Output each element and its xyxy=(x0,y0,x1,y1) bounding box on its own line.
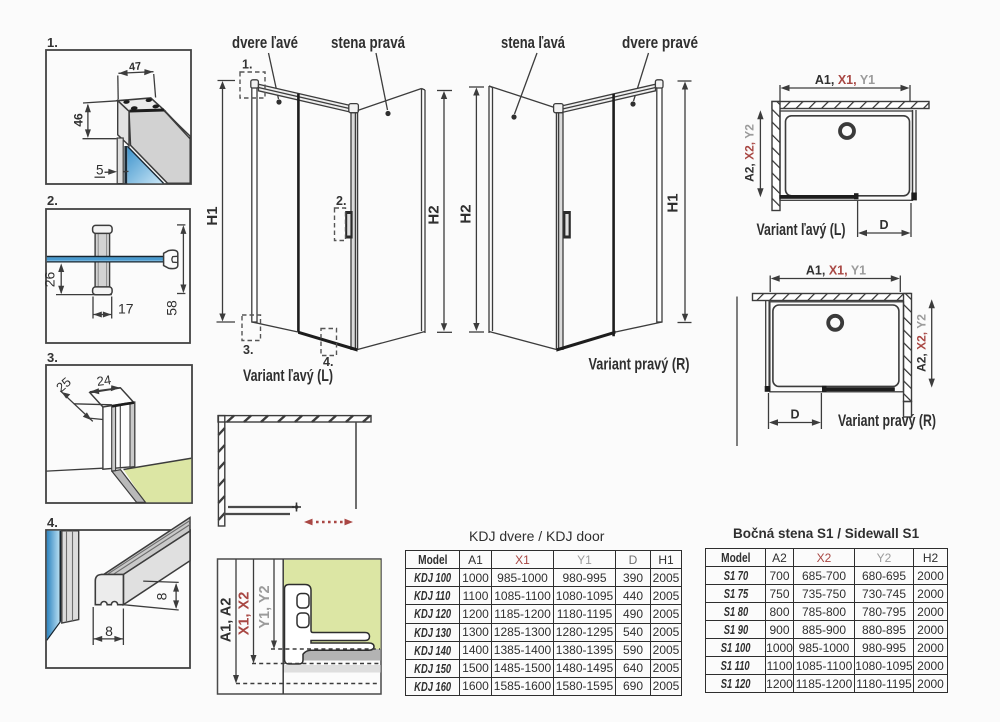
svg-text:stena pravá: stena pravá xyxy=(331,33,405,52)
svg-text:dvere pravé: dvere pravé xyxy=(622,33,698,52)
svg-text:1.: 1. xyxy=(47,35,58,50)
svg-text:D: D xyxy=(790,408,799,422)
svg-text:stena ľavá: stena ľavá xyxy=(501,33,565,52)
svg-text:1.: 1. xyxy=(242,58,252,72)
svg-text:D: D xyxy=(879,218,888,232)
svg-text:46: 46 xyxy=(72,113,86,127)
svg-text:3.: 3. xyxy=(243,343,253,357)
svg-text:3.: 3. xyxy=(47,350,58,365)
svg-text:24: 24 xyxy=(96,372,112,389)
svg-text:H2: H2 xyxy=(458,204,475,223)
svg-text:A2, X2, Y2: A2, X2, Y2 xyxy=(743,124,757,182)
svg-text:X1, X2: X1, X2 xyxy=(237,592,253,636)
svg-text:8: 8 xyxy=(105,623,113,639)
svg-text:A2, X2, Y2: A2, X2, Y2 xyxy=(915,314,929,372)
svg-text:26: 26 xyxy=(42,272,58,288)
svg-text:2.: 2. xyxy=(47,193,58,208)
svg-text:17: 17 xyxy=(118,301,134,317)
svg-text:47: 47 xyxy=(128,60,141,73)
svg-text:8: 8 xyxy=(154,592,170,600)
svg-text:Variant pravý (R): Variant pravý (R) xyxy=(838,412,936,430)
svg-text:H2: H2 xyxy=(426,205,443,224)
svg-text:H1: H1 xyxy=(204,206,221,225)
svg-text:2.: 2. xyxy=(336,194,346,208)
svg-text:Variant ľavý (L): Variant ľavý (L) xyxy=(757,221,846,239)
svg-text:Y1, Y2: Y1, Y2 xyxy=(257,585,273,628)
svg-text:A1, X1, Y1: A1, X1, Y1 xyxy=(815,73,875,87)
svg-text:4.: 4. xyxy=(47,515,58,530)
svg-text:A1, A2: A1, A2 xyxy=(219,598,235,643)
svg-text:5: 5 xyxy=(96,163,104,178)
svg-text:H1: H1 xyxy=(665,193,682,212)
svg-text:Variant pravý (R): Variant pravý (R) xyxy=(589,356,690,374)
svg-text:25: 25 xyxy=(53,374,74,395)
svg-text:58: 58 xyxy=(164,300,180,316)
svg-text:dvere ľavé: dvere ľavé xyxy=(232,33,298,52)
svg-text:A1, X1, Y1: A1, X1, Y1 xyxy=(806,264,866,278)
svg-text:Variant ľavý (L): Variant ľavý (L) xyxy=(243,367,333,385)
